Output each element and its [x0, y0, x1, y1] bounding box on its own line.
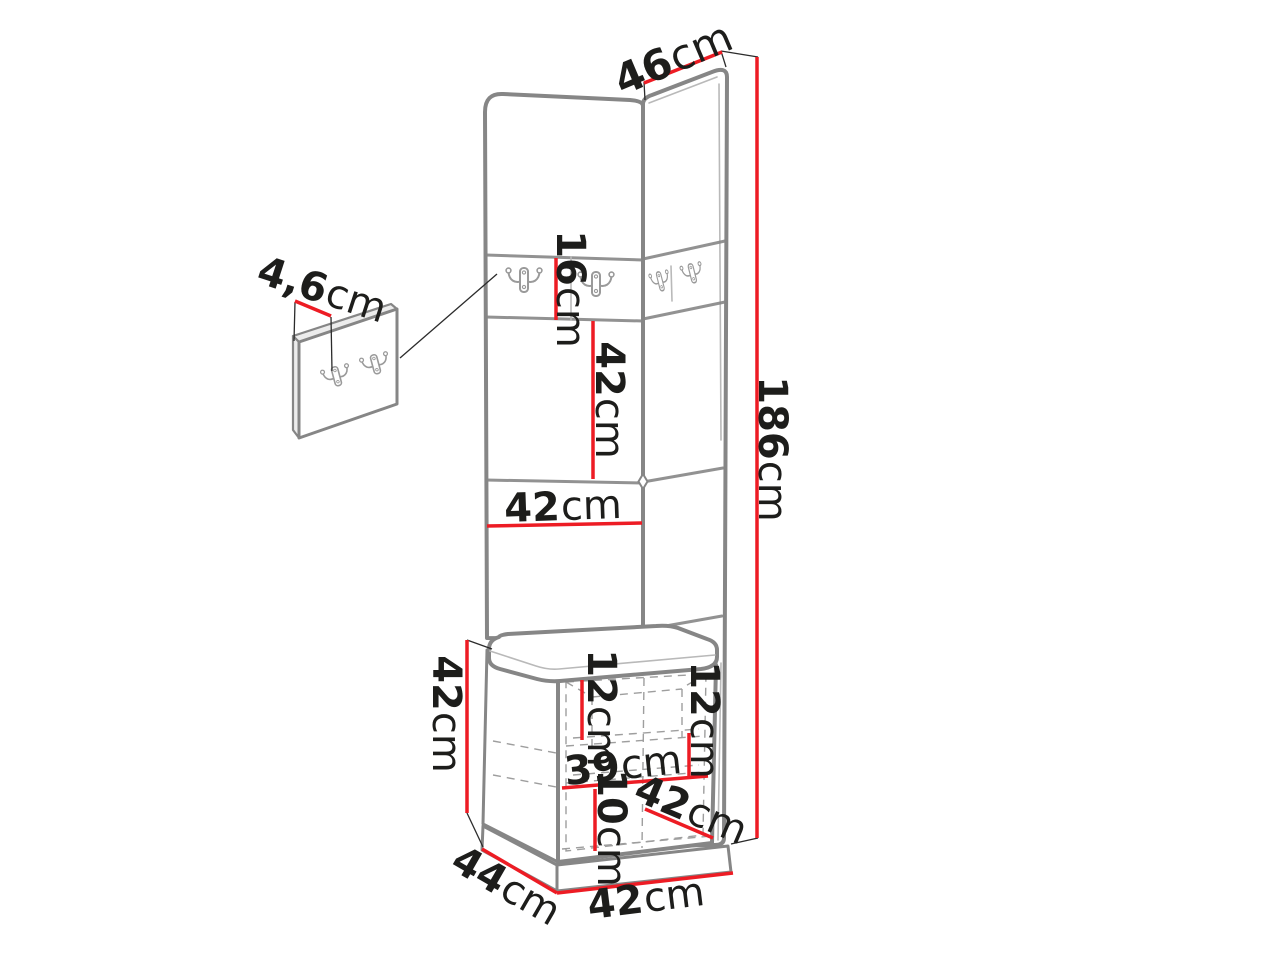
hook-panel-detail: [293, 304, 397, 438]
hook-row-seam: [671, 266, 672, 301]
dim-label-total-height: 186cm: [749, 376, 795, 521]
dim-label-bottom-section: 10cm: [588, 769, 634, 887]
dim-label-bench-height: 42cm: [423, 655, 469, 773]
dim-label-panel-width: 42cm: [503, 482, 622, 532]
dim-label-hook-row-height: 16cm: [547, 230, 593, 348]
dim-label-hook-panel-depth: 4,6cm: [252, 248, 393, 333]
dim-label-inner-right: 12cm: [681, 661, 727, 779]
furniture-dimension-diagram: 46cm 186cm 4,6cm 16cm 42cm 42cm 42cm 12c…: [0, 0, 1280, 960]
dim-label-mid-panel-height: 42cm: [586, 341, 632, 459]
detail-pointer-line: [400, 274, 497, 358]
